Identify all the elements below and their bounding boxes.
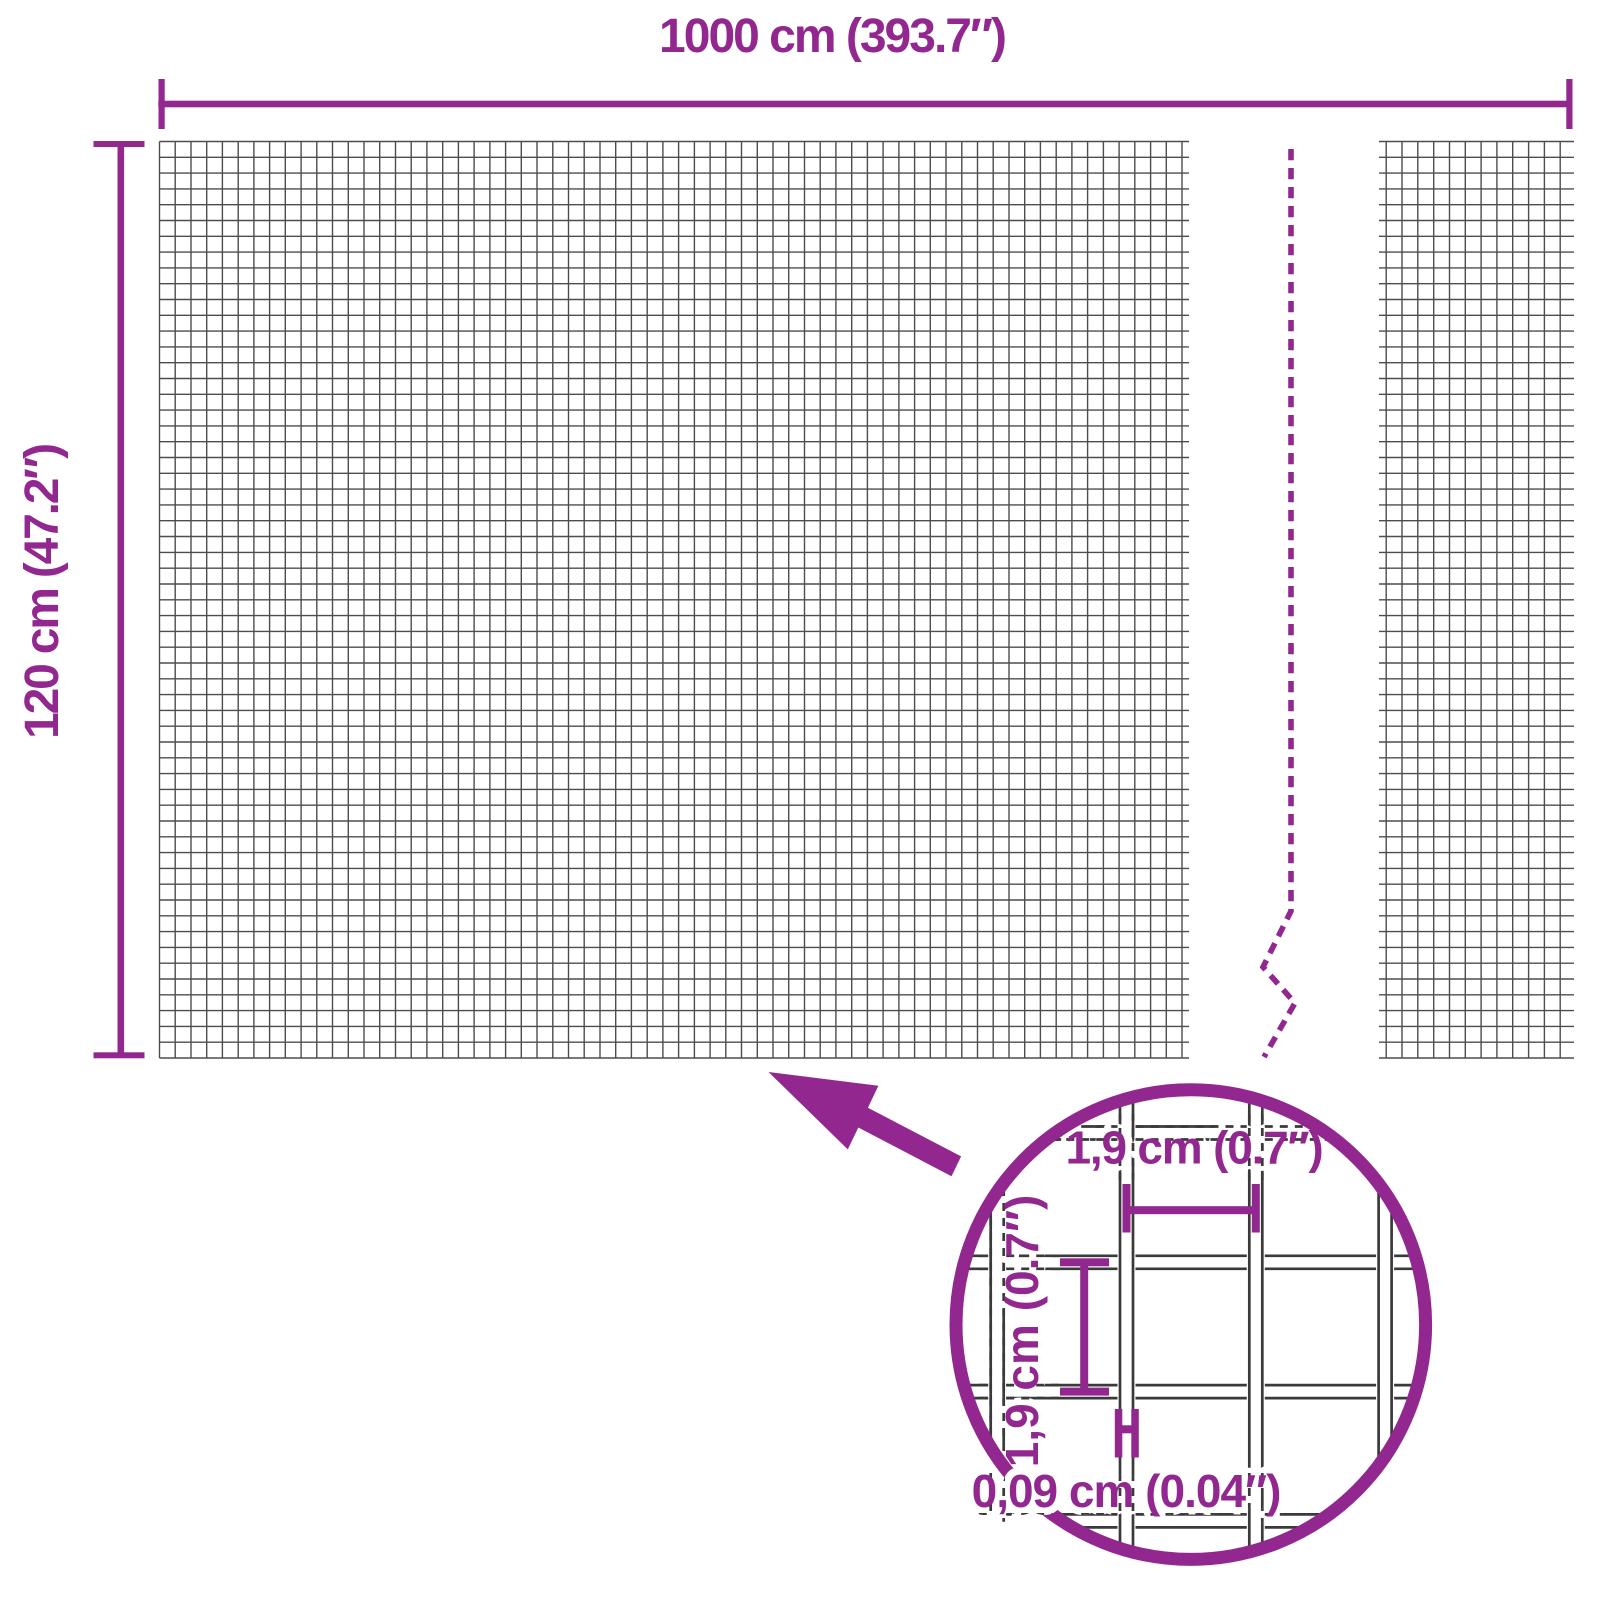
svg-text:1000 cm (393.7″): 1000 cm (393.7″): [659, 10, 1005, 63]
svg-text:120 cm (47.2″): 120 cm (47.2″): [16, 445, 69, 739]
svg-text:0,09 cm (0.04″): 0,09 cm (0.04″): [972, 1465, 1281, 1517]
svg-text:1,9 cm (0.7″): 1,9 cm (0.7″): [1065, 1122, 1322, 1174]
